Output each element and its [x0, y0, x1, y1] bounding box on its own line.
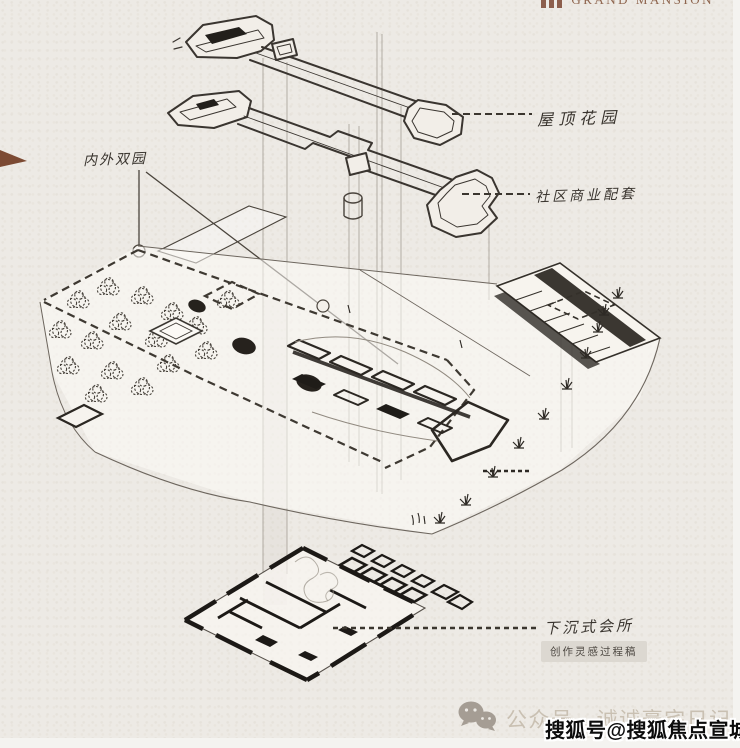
exploded-axonometric-sketch — [0, 0, 740, 748]
three-bars-logo-icon — [541, 0, 562, 8]
brown-triangle-icon — [0, 147, 30, 174]
layer-site-plan — [40, 246, 660, 534]
layer-clubhouse — [185, 545, 472, 680]
process-draft-note: 创作灵感过程稿 — [541, 641, 647, 662]
wechat-icon — [456, 699, 498, 738]
callout-roof-garden: 屋顶花园 — [537, 104, 622, 131]
callout-community-commercial: 社区商业配套 — [535, 183, 638, 207]
callout-inner-outer-gardens: 内外双园 — [83, 148, 148, 170]
callout-sunken-clubhouse: 下沉式会所 — [544, 614, 635, 638]
watermark-text: 搜狐号@搜狐焦点宣城站 — [545, 714, 740, 743]
grand-mansion-logo: GRAND MANSION — [541, 0, 714, 11]
right-edge-strip — [733, 0, 740, 748]
logo-text: GRAND MANSION — [571, 0, 714, 8]
